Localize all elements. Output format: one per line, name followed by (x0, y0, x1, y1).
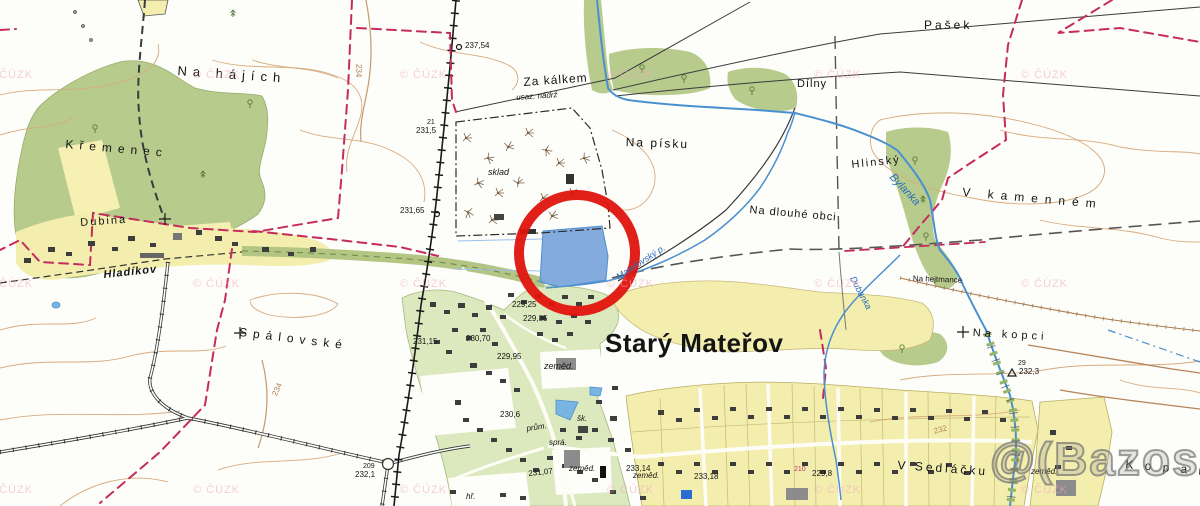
grid-cross (957, 326, 969, 338)
spot-height-label: 231,5 (416, 127, 436, 135)
point-number-label: 29 (1018, 360, 1026, 367)
bazos-watermark: @(Bazos.cz (990, 436, 1200, 482)
spot-height-label: 229,8 (812, 470, 832, 478)
cuzk-watermark: © ČÚZK (193, 70, 240, 81)
land-use-label-zemed: zeměd. (544, 362, 574, 371)
land-use-label-zemed: zeměd. (569, 465, 595, 473)
spot-height-label: 231,15 (413, 338, 437, 346)
spot-height-label: 232,3 (1019, 368, 1039, 376)
spot-height-label: 229,25 (512, 301, 536, 309)
spot-height-label: 229,95 (497, 353, 521, 361)
cuzk-watermark: © ČÚZK (814, 70, 861, 81)
cuzk-watermark: © ČÚZK (193, 279, 240, 290)
cuzk-watermark: © ČÚZK (0, 70, 33, 81)
land-use-label-zemed: zeměd. (633, 472, 659, 480)
spot-height-label: 232,1 (355, 471, 375, 479)
land-use-label-hriste: hř. (466, 493, 475, 501)
cuzk-watermark: © ČÚZK (814, 485, 861, 496)
land-use-label-sprava: sprá. (549, 439, 567, 447)
cuzk-watermark: © ČÚZK (607, 279, 654, 290)
topographic-map-image[interactable]: Na hájích Křemenec Dubina Hladíkov Spálo… (0, 0, 1200, 506)
land-use-label-skola: šk. (577, 415, 587, 423)
survey-point (457, 45, 462, 50)
cuzk-watermark: © ČÚZK (400, 485, 447, 496)
place-label-na-hejtmance: Na hejtmance (913, 275, 963, 285)
spot-height-label: 230,70 (466, 335, 490, 343)
cuzk-watermark: © ČÚZK (1021, 485, 1068, 496)
cuzk-watermark: © ČÚZK (607, 485, 654, 496)
cuzk-watermark: © ČÚZK (0, 279, 33, 290)
cuzk-watermark: © ČÚZK (1021, 279, 1068, 290)
spot-height-label: 237,54 (465, 42, 489, 50)
highlighted-pond (540, 226, 608, 287)
spot-height-label: 231,65 (400, 207, 424, 215)
cuzk-watermark: © ČÚZK (607, 70, 654, 81)
road-junction-circle (383, 459, 394, 470)
spot-height-label: 230,6 (500, 411, 520, 419)
cuzk-watermark: © ČÚZK (814, 279, 861, 290)
cuzk-watermark: © ČÚZK (1021, 70, 1068, 81)
cuzk-watermark: © ČÚZK (400, 70, 447, 81)
place-label-sklad: sklad (488, 168, 509, 177)
spot-height-label: 233,18 (694, 473, 718, 481)
place-label-stary-materov: Starý Mateřov (605, 330, 783, 356)
cuzk-watermark: © ČÚZK (193, 485, 240, 496)
spot-height-label: 229,85 (523, 315, 547, 323)
boundary-number-label: 210 (794, 466, 806, 473)
cuzk-watermark: © ČÚZK (400, 279, 447, 290)
point-number-label: 209 (363, 463, 375, 470)
place-label-na-pisku: Na písku (626, 136, 690, 150)
contour-label: 234 (354, 64, 362, 77)
place-label-pasek: Pašek (924, 19, 972, 31)
point-number-label: 21 (427, 119, 435, 126)
tree-lined-roads (0, 262, 470, 506)
cuzk-watermark: © ČÚZK (0, 485, 33, 496)
